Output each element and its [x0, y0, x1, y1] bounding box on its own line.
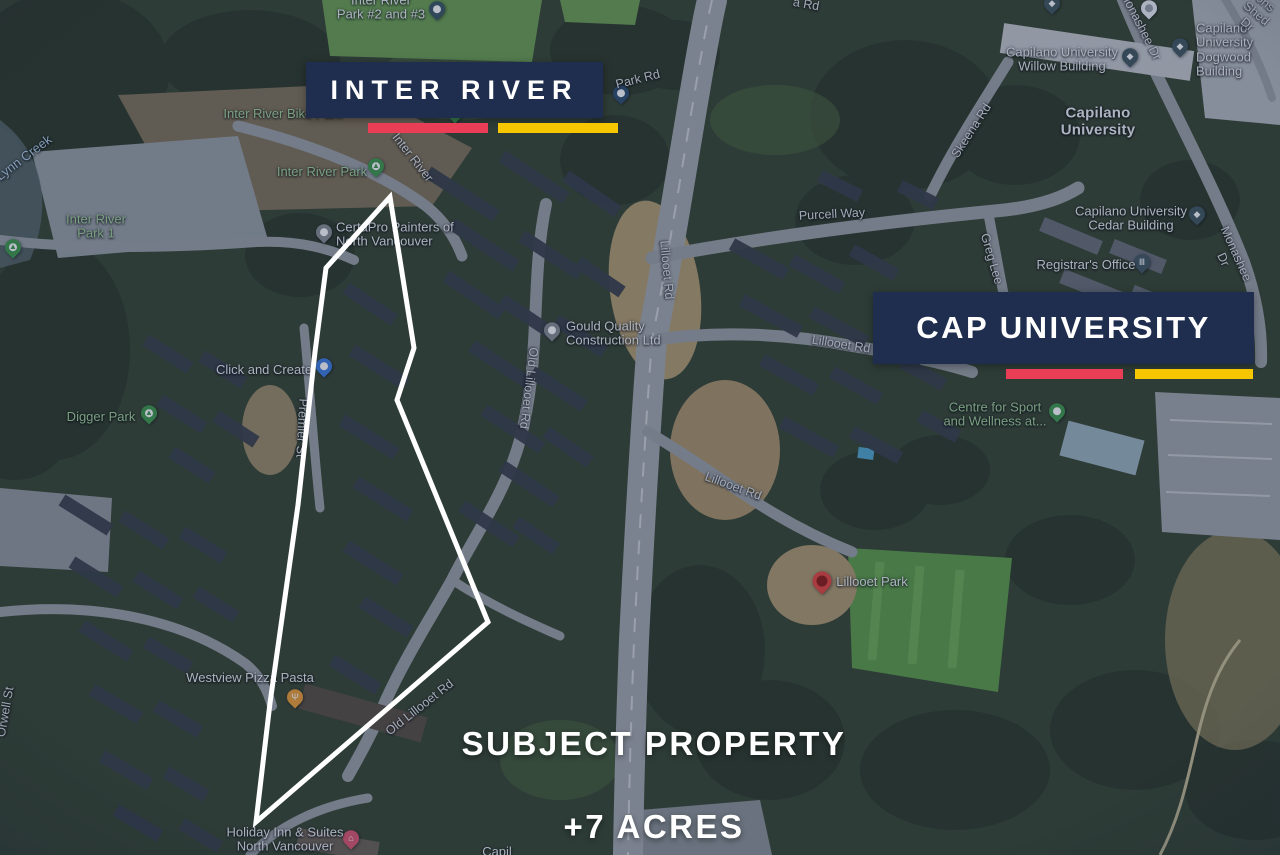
subject-property-line2: +7 ACRES: [563, 808, 744, 845]
subject-property-line1: SUBJECT PROPERTY: [462, 725, 847, 762]
cap-university-callout: CAP UNIVERSITY: [873, 292, 1254, 364]
cap-university-yellow-bar: [1135, 369, 1253, 379]
marketing-overlays: INTER RIVER CAP UNIVERSITY SUBJECT PROPE…: [0, 0, 1280, 855]
cap-university-title: CAP UNIVERSITY: [916, 310, 1211, 346]
inter-river-yellow-bar: [498, 123, 618, 133]
inter-river-red-bar: [368, 123, 488, 133]
aerial-map-image: ▲ ▲ ▲ ▲ Ψ ⌂ ◆ ◆ ◆ Ⅲ ◆ Inter River Bike P…: [0, 0, 1280, 855]
subject-property-annotation: SUBJECT PROPERTY +7 ACRES: [392, 682, 847, 855]
cap-university-red-bar: [1006, 369, 1123, 379]
inter-river-callout: INTER RIVER: [306, 62, 603, 118]
inter-river-title: INTER RIVER: [330, 75, 578, 106]
